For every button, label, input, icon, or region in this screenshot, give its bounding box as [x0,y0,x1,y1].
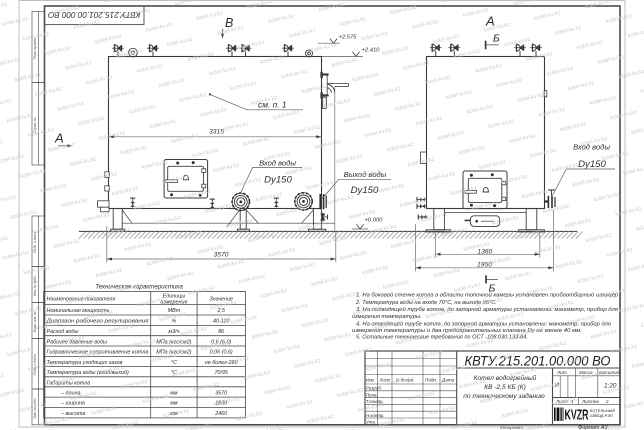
svg-text:5. Остальные технические треб: 5. Остальные технические требования по О… [356,335,528,341]
svg-text:Н.контр.: Н.контр. [366,413,385,418]
svg-text:+0.000: +0.000 [365,218,384,224]
svg-text:°С: °С [171,360,177,366]
svg-text:КВ -2,5 КБ (К): КВ -2,5 КБ (К) [484,384,526,391]
svg-text:3. На подводящей трубе котла,: 3. На подводящей трубе котла, до запорно… [356,306,618,313]
svg-text:мм: мм [170,401,178,407]
svg-text:Температура уходящих газов: Температура уходящих газов [47,360,123,366]
svg-text:3570: 3570 [214,252,229,259]
svg-text:2460: 2460 [214,411,227,417]
svg-text:Листов: Листов [581,399,599,404]
svg-text:Dу150: Dу150 [351,185,379,196]
svg-text:МПа (кгс/см2): МПа (кгс/см2) [156,339,191,345]
svg-text:А: А [54,131,64,146]
svg-text:Дата: Дата [441,378,455,383]
svg-text:3570: 3570 [215,390,227,396]
svg-text:КВТУ.215.201.00.000 ВО: КВТУ.215.201.00.000 ВО [465,353,611,368]
svg-text:Пров.: Пров. [366,392,378,397]
svg-text:2: 2 [605,399,609,404]
svg-text:Разраб.: Разраб. [366,386,382,391]
svg-text:40-110: 40-110 [213,319,229,325]
svg-text:м3/ч: м3/ч [168,329,179,335]
svg-text:+2.410: +2.410 [362,48,381,54]
svg-text:Б: Б [493,33,500,45]
svg-text:мм: мм [170,390,178,396]
svg-text:Подп.: Подп. [425,378,437,383]
svg-text:70/95: 70/95 [214,370,228,376]
svg-text:Копировал: Копировал [500,425,523,430]
svg-text:Лит.: Лит. [556,370,568,375]
svg-text:86: 86 [218,329,224,335]
svg-text:Инв. № дубл.: Инв. № дубл. [33,275,37,296]
svg-text:0,06 (0,6): 0,06 (0,6) [210,350,233,356]
svg-text:1. На боковой стенке котла в: 1. На боковой стенке котла в области топ… [356,291,618,298]
svg-text:Изм.: Изм. [366,378,375,383]
svg-text:+2.575: +2.575 [339,35,358,41]
svg-text:Утв.: Утв. [366,420,376,425]
svg-text:– высота: – высота [60,411,85,417]
svg-text:Расход воды: Расход воды [47,329,79,335]
